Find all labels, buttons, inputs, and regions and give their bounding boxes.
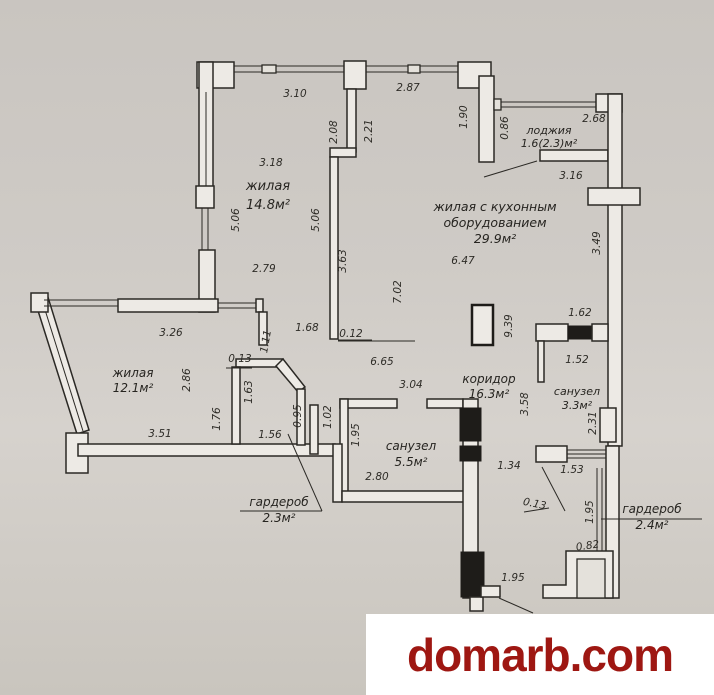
- dimension-label: 0.12: [339, 328, 363, 340]
- room-area: 3.3м²: [562, 399, 593, 412]
- dimension-label: 0.95: [292, 404, 304, 428]
- dimension-label: 2.87: [396, 82, 420, 94]
- room-area: 5.5м²: [395, 455, 428, 469]
- dimension-label: 0.13: [522, 496, 547, 513]
- room-area: 1.6(2.3)м²: [521, 137, 578, 150]
- room-area: 16.3м²: [469, 387, 510, 401]
- room-name: коридор: [462, 372, 516, 386]
- dimension-label: 3.18: [259, 157, 283, 169]
- dimension-label: 2.68: [582, 113, 606, 125]
- room-name: гардероб: [249, 495, 309, 509]
- dimension-label: 1.52: [565, 354, 589, 366]
- room-area: 14.8м²: [246, 198, 290, 213]
- dimension-label: 1.53: [560, 464, 583, 476]
- dimension-label: 2.80: [365, 471, 389, 483]
- dimension-label: 3.51: [148, 428, 171, 440]
- interior-walls: [118, 89, 616, 611]
- dimension-label: 3.16: [559, 170, 583, 182]
- room-name: оборудованием: [443, 215, 546, 230]
- dimension-label: 1.95: [350, 423, 362, 447]
- room-name: жилая: [112, 366, 154, 380]
- room-area: 12.1м²: [113, 381, 154, 395]
- dimension-label: 3.58: [519, 392, 531, 416]
- watermark-text: domarb.com: [407, 632, 673, 678]
- dimension-label: 1.76: [211, 407, 223, 431]
- dimension-label: 1.02: [322, 405, 334, 429]
- room-name: санузел: [386, 439, 437, 453]
- room-name: жилая: [245, 179, 290, 194]
- dimension-label: 6.65: [370, 356, 394, 368]
- dimension-label: 7.02: [392, 280, 404, 304]
- dimension-label: 5.06: [310, 208, 322, 232]
- dimension-label: 0.13: [228, 353, 251, 365]
- dimension-label: 1.63: [243, 380, 255, 403]
- dimension-label: 1.68: [295, 322, 319, 334]
- dimension-label: 6.47: [451, 255, 475, 267]
- dimension-label: 1.90: [458, 105, 470, 129]
- dimension-label: 2.08: [328, 120, 340, 144]
- room-area: 29.9м²: [474, 231, 516, 246]
- dimension-label: 0.86: [499, 116, 511, 140]
- dimension-label: 3.10: [283, 88, 307, 100]
- floor-plan-drawing: 3.102.872.082.211.900.862.683.183.165.06…: [0, 0, 714, 695]
- room-name: лоджия: [525, 124, 571, 137]
- dimension-label: 3.49: [591, 231, 603, 255]
- dimension-label: 2.21: [363, 119, 375, 142]
- dimension-label: 5.06: [230, 208, 242, 232]
- dimension-label: 3.26: [159, 327, 183, 339]
- dimension-label: 1.62: [568, 307, 592, 319]
- dimension-label: 2.31: [587, 411, 599, 434]
- dimension-label: 2.86: [181, 368, 193, 392]
- room-name: гардероб: [622, 502, 682, 516]
- dimension-label: 1.56: [258, 429, 282, 441]
- room-area: 2.3м²: [263, 511, 296, 525]
- watermark-banner: domarb.com: [366, 614, 714, 695]
- scanned-floor-plan-page: 3.102.872.082.211.900.862.683.183.165.06…: [0, 0, 714, 695]
- room-name: санузел: [554, 385, 600, 398]
- room-area: 2.4м²: [636, 518, 669, 532]
- dimension-label: 1.34: [497, 460, 520, 472]
- dimension-label: 1.95: [501, 572, 525, 584]
- dimension-label: 9.39: [503, 314, 515, 338]
- dimension-label: 3.63: [337, 249, 349, 272]
- dimension-label: 3.04: [399, 379, 422, 391]
- dimension-label: 2.79: [252, 263, 276, 275]
- room-name: жилая с кухонным: [432, 199, 556, 214]
- dimension-label: 1.95: [584, 500, 596, 524]
